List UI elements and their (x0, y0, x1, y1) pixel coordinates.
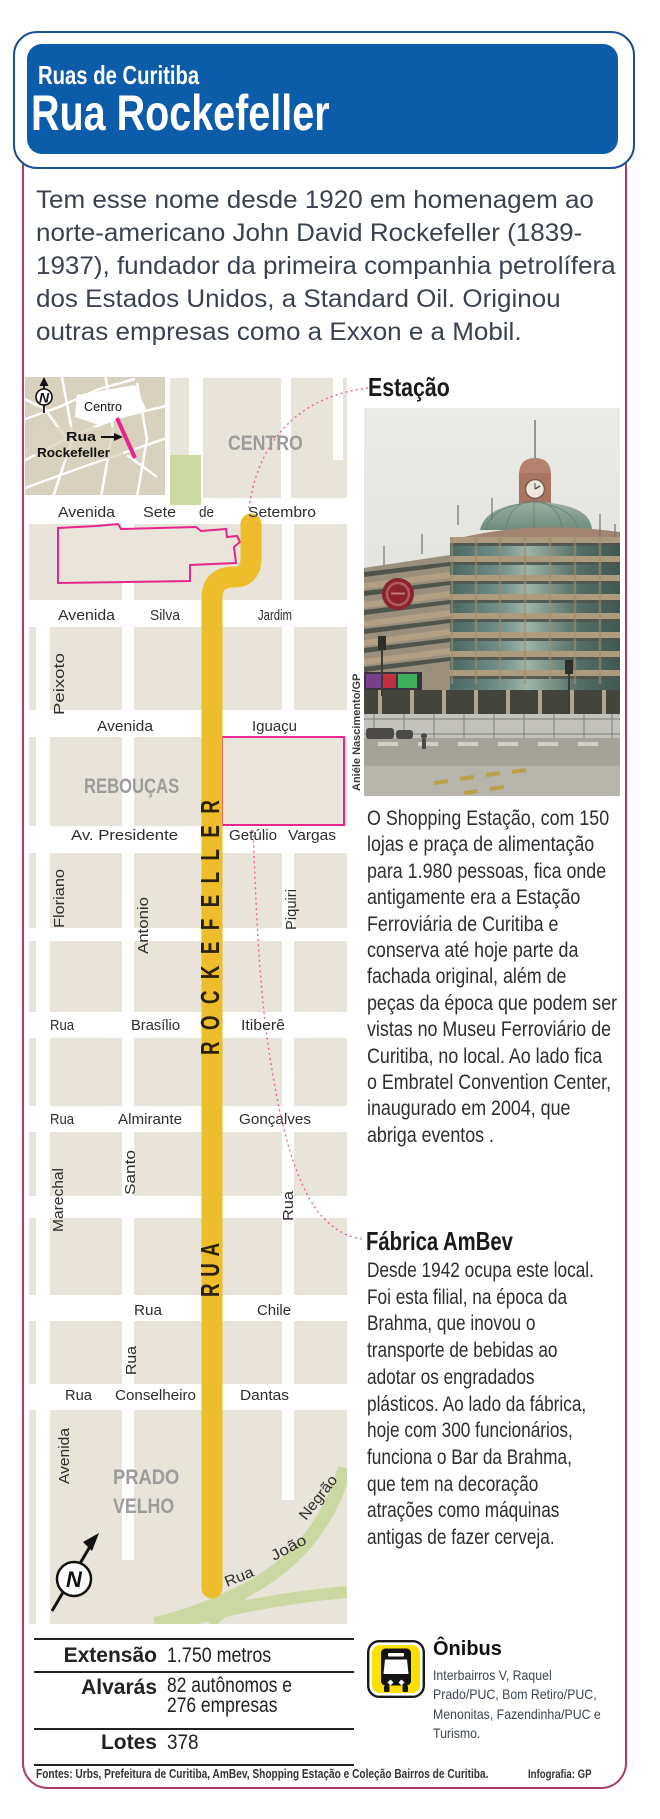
svg-text:Centro: Centro (84, 399, 122, 414)
svg-text:Rua: Rua (280, 1190, 297, 1221)
svg-text:N: N (66, 1567, 83, 1592)
svg-text:Avenida: Avenida (58, 504, 116, 521)
svg-text:Gonçalves: Gonçalves (239, 1111, 311, 1128)
svg-text:Conselheiro: Conselheiro (115, 1387, 196, 1404)
svg-text:Rua: Rua (50, 1111, 75, 1128)
svg-text:PRADO: PRADO (113, 1466, 179, 1490)
svg-text:Brasílio: Brasílio (131, 1017, 180, 1034)
svg-text:Avenida: Avenida (58, 607, 116, 624)
svg-text:de: de (199, 504, 214, 521)
svg-text:CENTRO: CENTRO (228, 432, 303, 456)
svg-text:Peixoto: Peixoto (51, 653, 68, 715)
svg-text:Itiberê: Itiberê (241, 1017, 285, 1034)
svg-text:N: N (39, 390, 50, 406)
svg-text:Av. Presidente: Av. Presidente (71, 827, 178, 844)
svg-text:RUA: RUA (195, 1243, 225, 1297)
svg-text:REBOUÇAS: REBOUÇAS (84, 775, 179, 799)
svg-text:Avenida: Avenida (56, 1427, 73, 1484)
svg-text:Almirante: Almirante (118, 1111, 182, 1128)
svg-text:Getúlio: Getúlio (229, 827, 277, 844)
svg-text:Setembro: Setembro (248, 504, 316, 521)
svg-text:Chile: Chile (257, 1302, 291, 1319)
svg-text:Vargas: Vargas (288, 827, 336, 844)
svg-text:Iguaçu: Iguaçu (252, 718, 297, 735)
svg-text:Piquiri: Piquiri (283, 889, 300, 930)
svg-text:Dantas: Dantas (240, 1387, 289, 1404)
svg-text:Rua: Rua (134, 1302, 163, 1319)
svg-text:Rua: Rua (123, 1345, 140, 1375)
svg-text:Rua: Rua (50, 1017, 75, 1034)
svg-text:Jardim: Jardim (258, 607, 292, 624)
svg-text:Sete: Sete (143, 504, 176, 521)
svg-text:Rockefeller: Rockefeller (37, 445, 110, 460)
svg-text:VELHO: VELHO (113, 1495, 174, 1519)
svg-text:Rua: Rua (66, 429, 97, 444)
svg-text:Silva: Silva (150, 607, 181, 624)
svg-text:Floriano: Floriano (51, 869, 68, 928)
svg-text:Antonio: Antonio (135, 897, 152, 954)
svg-text:Marechal: Marechal (50, 1168, 67, 1232)
svg-text:Rua: Rua (65, 1387, 93, 1404)
svg-text:Avenida: Avenida (97, 718, 154, 735)
svg-text:Santo: Santo (122, 1150, 139, 1195)
